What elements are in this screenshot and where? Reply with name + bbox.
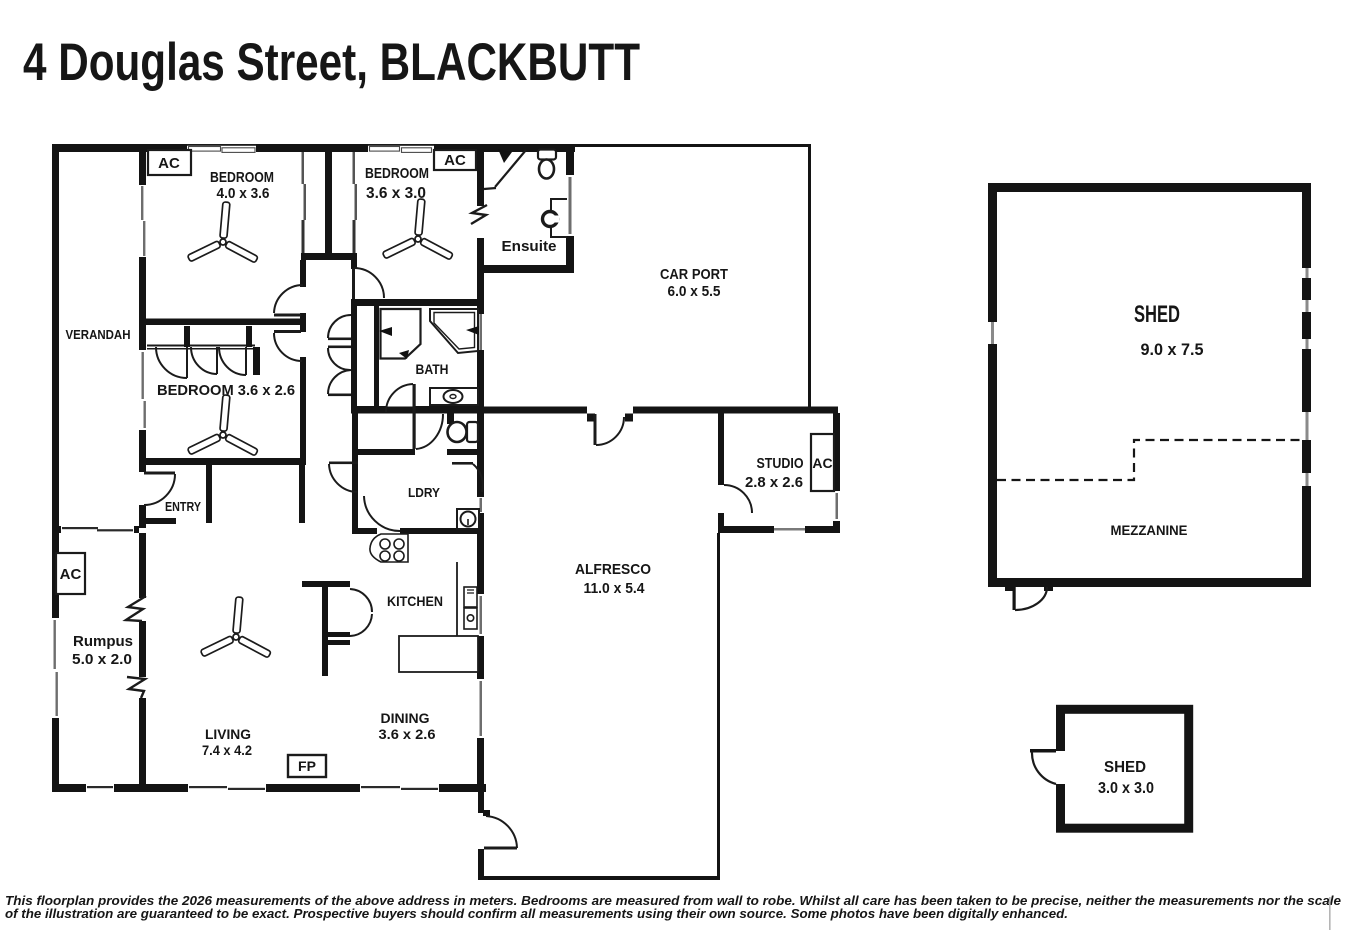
svg-text:LDRY: LDRY [408,485,440,500]
svg-text:AC: AC [158,155,180,172]
svg-text:3.0 x 3.0: 3.0 x 3.0 [1098,780,1154,797]
svg-text:4 Douglas Street, BLACKBUTT: 4 Douglas Street, BLACKBUTT [23,33,640,92]
svg-text:3.6 x 2.6: 3.6 x 2.6 [379,726,436,742]
svg-text:BATH: BATH [416,361,449,377]
svg-text:4.0 x 3.6: 4.0 x 3.6 [217,185,270,202]
svg-text:AC: AC [60,566,82,583]
svg-text:3.6 x 3.0: 3.6 x 3.0 [366,185,426,202]
svg-text:AC: AC [812,455,832,471]
svg-text:CAR PORT: CAR PORT [660,266,728,283]
svg-text:FP: FP [298,758,316,774]
svg-text:VERANDAH: VERANDAH [66,327,131,342]
svg-text:BEDROOM: BEDROOM [210,169,274,186]
svg-text:AC: AC [444,152,466,169]
svg-text:BEDROOM 3.6 x 2.6: BEDROOM 3.6 x 2.6 [157,382,295,399]
svg-text:MEZZANINE: MEZZANINE [1111,522,1188,538]
svg-text:9.0 x 7.5: 9.0 x 7.5 [1141,340,1204,359]
svg-text:STUDIO: STUDIO [757,455,804,472]
svg-text:of the illustration are guaran: of the illustration are guaranteed to be… [5,906,1068,921]
svg-text:2.8 x 2.6: 2.8 x 2.6 [745,474,803,491]
svg-text:11.0 x 5.4: 11.0 x 5.4 [584,580,646,597]
svg-text:DINING: DINING [381,710,430,726]
svg-text:7.4 x 4.2: 7.4 x 4.2 [202,742,252,758]
svg-text:ALFRESCO: ALFRESCO [575,561,651,578]
svg-text:SHED: SHED [1134,301,1180,328]
svg-text:5.0 x 2.0: 5.0 x 2.0 [72,651,132,668]
svg-text:KITCHEN: KITCHEN [387,593,443,609]
svg-text:SHED: SHED [1104,759,1146,776]
svg-text:Ensuite: Ensuite [502,238,557,255]
svg-text:Rumpus: Rumpus [73,633,133,650]
svg-text:BEDROOM: BEDROOM [365,165,429,182]
svg-text:ENTRY: ENTRY [165,499,201,514]
svg-text:6.0 x 5.5: 6.0 x 5.5 [668,283,721,300]
svg-text:LIVING: LIVING [205,726,251,742]
